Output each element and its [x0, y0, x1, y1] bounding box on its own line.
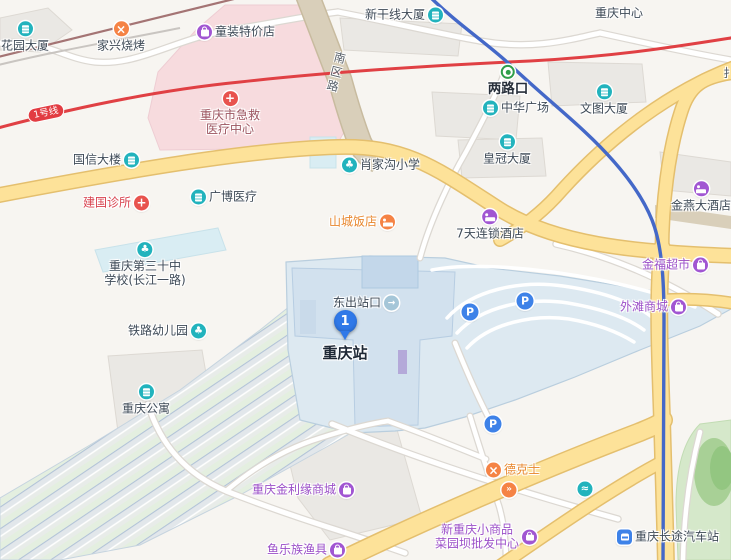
poi-label: 重庆公寓 — [122, 401, 170, 415]
map-poi[interactable]: 山城饭店 — [329, 215, 395, 230]
building-icon — [124, 153, 139, 168]
poi-label: 家兴烧烤 — [97, 38, 145, 52]
building-icon — [428, 8, 443, 23]
bag-icon — [671, 300, 686, 315]
map-poi[interactable]: 金福超市 — [642, 258, 708, 273]
bed-icon — [482, 209, 497, 224]
map-poi[interactable]: 皇冠大厦 — [483, 134, 531, 165]
marker-tail — [340, 331, 350, 345]
poi-label: 新重庆小商品菜园坝批发中心 — [435, 523, 519, 552]
poi-label: 山城饭店 — [329, 215, 377, 229]
building-icon — [17, 21, 32, 36]
poi-label: 文图大厦 — [580, 101, 628, 115]
school-icon — [191, 324, 206, 339]
map-poi[interactable]: 广博医疗 — [191, 190, 257, 205]
map-poi[interactable] — [462, 304, 479, 321]
bus-icon — [617, 530, 632, 545]
map-canvas[interactable]: 花园大厦家兴烧烤童装特价店重庆市急救医疗中心国信大楼建国诊所广博医疗重庆第三十中… — [0, 0, 731, 560]
poi-label: 中华广场 — [501, 101, 549, 115]
map-poi[interactable]: 重庆站 — [322, 344, 367, 362]
poi-label: 铁路幼儿园 — [128, 324, 188, 338]
parking-icon — [462, 304, 479, 321]
map-poi[interactable]: 肖家沟小学 — [342, 158, 420, 173]
poi-label: 重庆第三十中学校(长江一路) — [104, 259, 185, 288]
map-poi[interactable]: 东出站口 — [333, 296, 399, 311]
bag-icon — [197, 25, 212, 40]
poi-label: 新干线大厦 — [365, 8, 425, 22]
map-poi[interactable]: 鱼乐族渔具 — [267, 543, 345, 558]
map-poi[interactable]: 重庆长途汽车站 — [617, 530, 719, 545]
hospital-icon — [134, 196, 149, 211]
marker-number: 1 — [334, 310, 357, 333]
map-poi[interactable]: 家兴烧烤 — [97, 21, 145, 52]
bag-icon — [693, 258, 708, 273]
poi-label: 重庆金利缘商城 — [252, 483, 336, 497]
map-poi[interactable]: 花园大厦 — [1, 21, 49, 52]
hospital-icon — [222, 91, 237, 106]
map-poi[interactable]: 国信大楼 — [73, 153, 139, 168]
map-poi[interactable]: 童装特价店 — [197, 25, 275, 40]
poi-label: 金燕大酒店 — [671, 198, 731, 212]
map-poi[interactable]: 金燕大酒店 — [671, 181, 731, 212]
poi-label: 国信大楼 — [73, 153, 121, 167]
bag-icon — [330, 543, 345, 558]
map-poi[interactable] — [502, 483, 517, 498]
map-poi[interactable]: 重庆市急救医疗中心 — [200, 91, 260, 137]
map-poi[interactable]: 德克士 — [486, 463, 540, 478]
road-label: 南区路 — [323, 50, 349, 96]
poi-label: 重庆市急救医疗中心 — [200, 108, 260, 137]
map-poi[interactable] — [578, 482, 593, 497]
poi-label: 肖家沟小学 — [360, 158, 420, 172]
poi-layer: 花园大厦家兴烧烤童装特价店重庆市急救医疗中心国信大楼建国诊所广博医疗重庆第三十中… — [0, 0, 731, 560]
map-poi[interactable]: 重庆公寓 — [122, 384, 170, 415]
poi-label: 重庆中心 — [595, 6, 643, 20]
map-poi[interactable]: 建国诊所 — [83, 196, 149, 211]
building-icon — [191, 190, 206, 205]
map-poi[interactable]: 重庆中心 — [595, 6, 643, 20]
bed-icon — [693, 181, 708, 196]
building-icon — [138, 384, 153, 399]
map-poi[interactable]: 新干线大厦 — [365, 8, 443, 23]
map-poi[interactable]: 两路口 — [488, 65, 529, 97]
poi-label: 花园大厦 — [1, 38, 49, 52]
poi-label: 外滩商城 — [620, 300, 668, 314]
building-icon — [596, 84, 611, 99]
poi-label: 德克士 — [504, 463, 540, 477]
station-marker-pin[interactable]: 1 — [332, 310, 358, 345]
poi-label: 金福超市 — [642, 258, 690, 272]
restaurant-icon — [486, 463, 501, 478]
poi-label: 东出站口 — [333, 296, 381, 310]
road-label: 扌 — [723, 65, 731, 81]
parking-icon — [485, 416, 502, 433]
poi-label: 重庆长途汽车站 — [635, 530, 719, 544]
arrows-icon — [502, 483, 517, 498]
bag-icon — [339, 483, 354, 498]
restaurant-icon — [113, 21, 128, 36]
poi-label: 童装特价店 — [215, 25, 275, 39]
map-poi[interactable]: 重庆金利缘商城 — [252, 483, 354, 498]
map-poi[interactable]: 铁路幼儿园 — [128, 324, 206, 339]
building-icon — [499, 134, 514, 149]
metro-icon — [501, 65, 515, 79]
map-poi[interactable]: 外滩商城 — [620, 300, 686, 315]
building-icon — [483, 101, 498, 116]
wave-icon — [578, 482, 593, 497]
parking-icon — [517, 293, 534, 310]
bag-icon — [522, 530, 537, 545]
school-icon — [138, 242, 153, 257]
map-poi[interactable] — [485, 416, 502, 433]
map-poi[interactable] — [517, 293, 534, 310]
poi-label: 7天连锁酒店 — [456, 226, 524, 240]
poi-label: 皇冠大厦 — [483, 151, 531, 165]
poi-label: 建国诊所 — [83, 196, 131, 210]
map-poi[interactable]: 中华广场 — [483, 101, 549, 116]
poi-label: 广博医疗 — [209, 190, 257, 204]
map-poi[interactable]: 文图大厦 — [580, 84, 628, 115]
poi-label: 两路口 — [488, 81, 529, 97]
bed-icon — [380, 215, 395, 230]
map-poi[interactable]: 新重庆小商品菜园坝批发中心 — [435, 523, 537, 552]
school-icon — [342, 158, 357, 173]
poi-label: 鱼乐族渔具 — [267, 543, 327, 557]
map-poi[interactable]: 重庆第三十中学校(长江一路) — [104, 242, 185, 288]
poi-label: 重庆站 — [322, 344, 367, 362]
exit-icon — [384, 296, 399, 311]
map-poi[interactable]: 7天连锁酒店 — [456, 209, 524, 240]
